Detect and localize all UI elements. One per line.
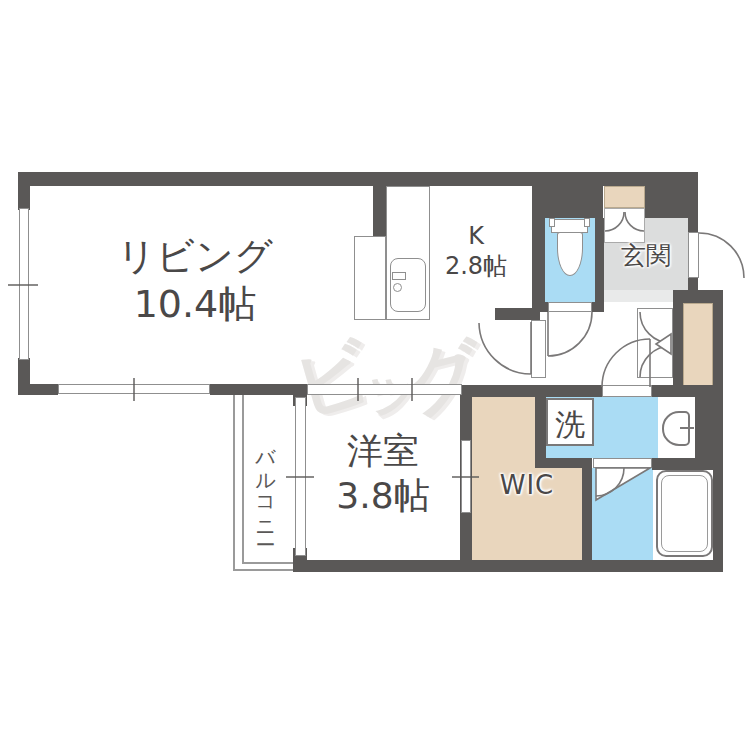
wic-label: WIC (472, 469, 582, 502)
door-swing-icons (0, 0, 750, 750)
floorplan-canvas: ビ ッ グ (0, 0, 750, 750)
western-room-label: 洋室 3.8帖 (310, 428, 456, 518)
western-room-size: 3.8帖 (310, 473, 456, 518)
living-room-size: 10.4帖 (60, 281, 330, 329)
laundry-label: 洗 (546, 406, 594, 444)
kitchen-name: K (420, 221, 532, 251)
living-room-label: リビング 10.4帖 (60, 233, 330, 328)
kitchen-size: 2.8帖 (420, 251, 532, 281)
balcony-label: バルコニー (253, 408, 278, 563)
entrance-label: 玄関 (604, 240, 688, 271)
western-room-name: 洋室 (310, 428, 456, 473)
kitchen-label: K 2.8帖 (420, 221, 532, 281)
living-room-name: リビング (60, 233, 330, 281)
